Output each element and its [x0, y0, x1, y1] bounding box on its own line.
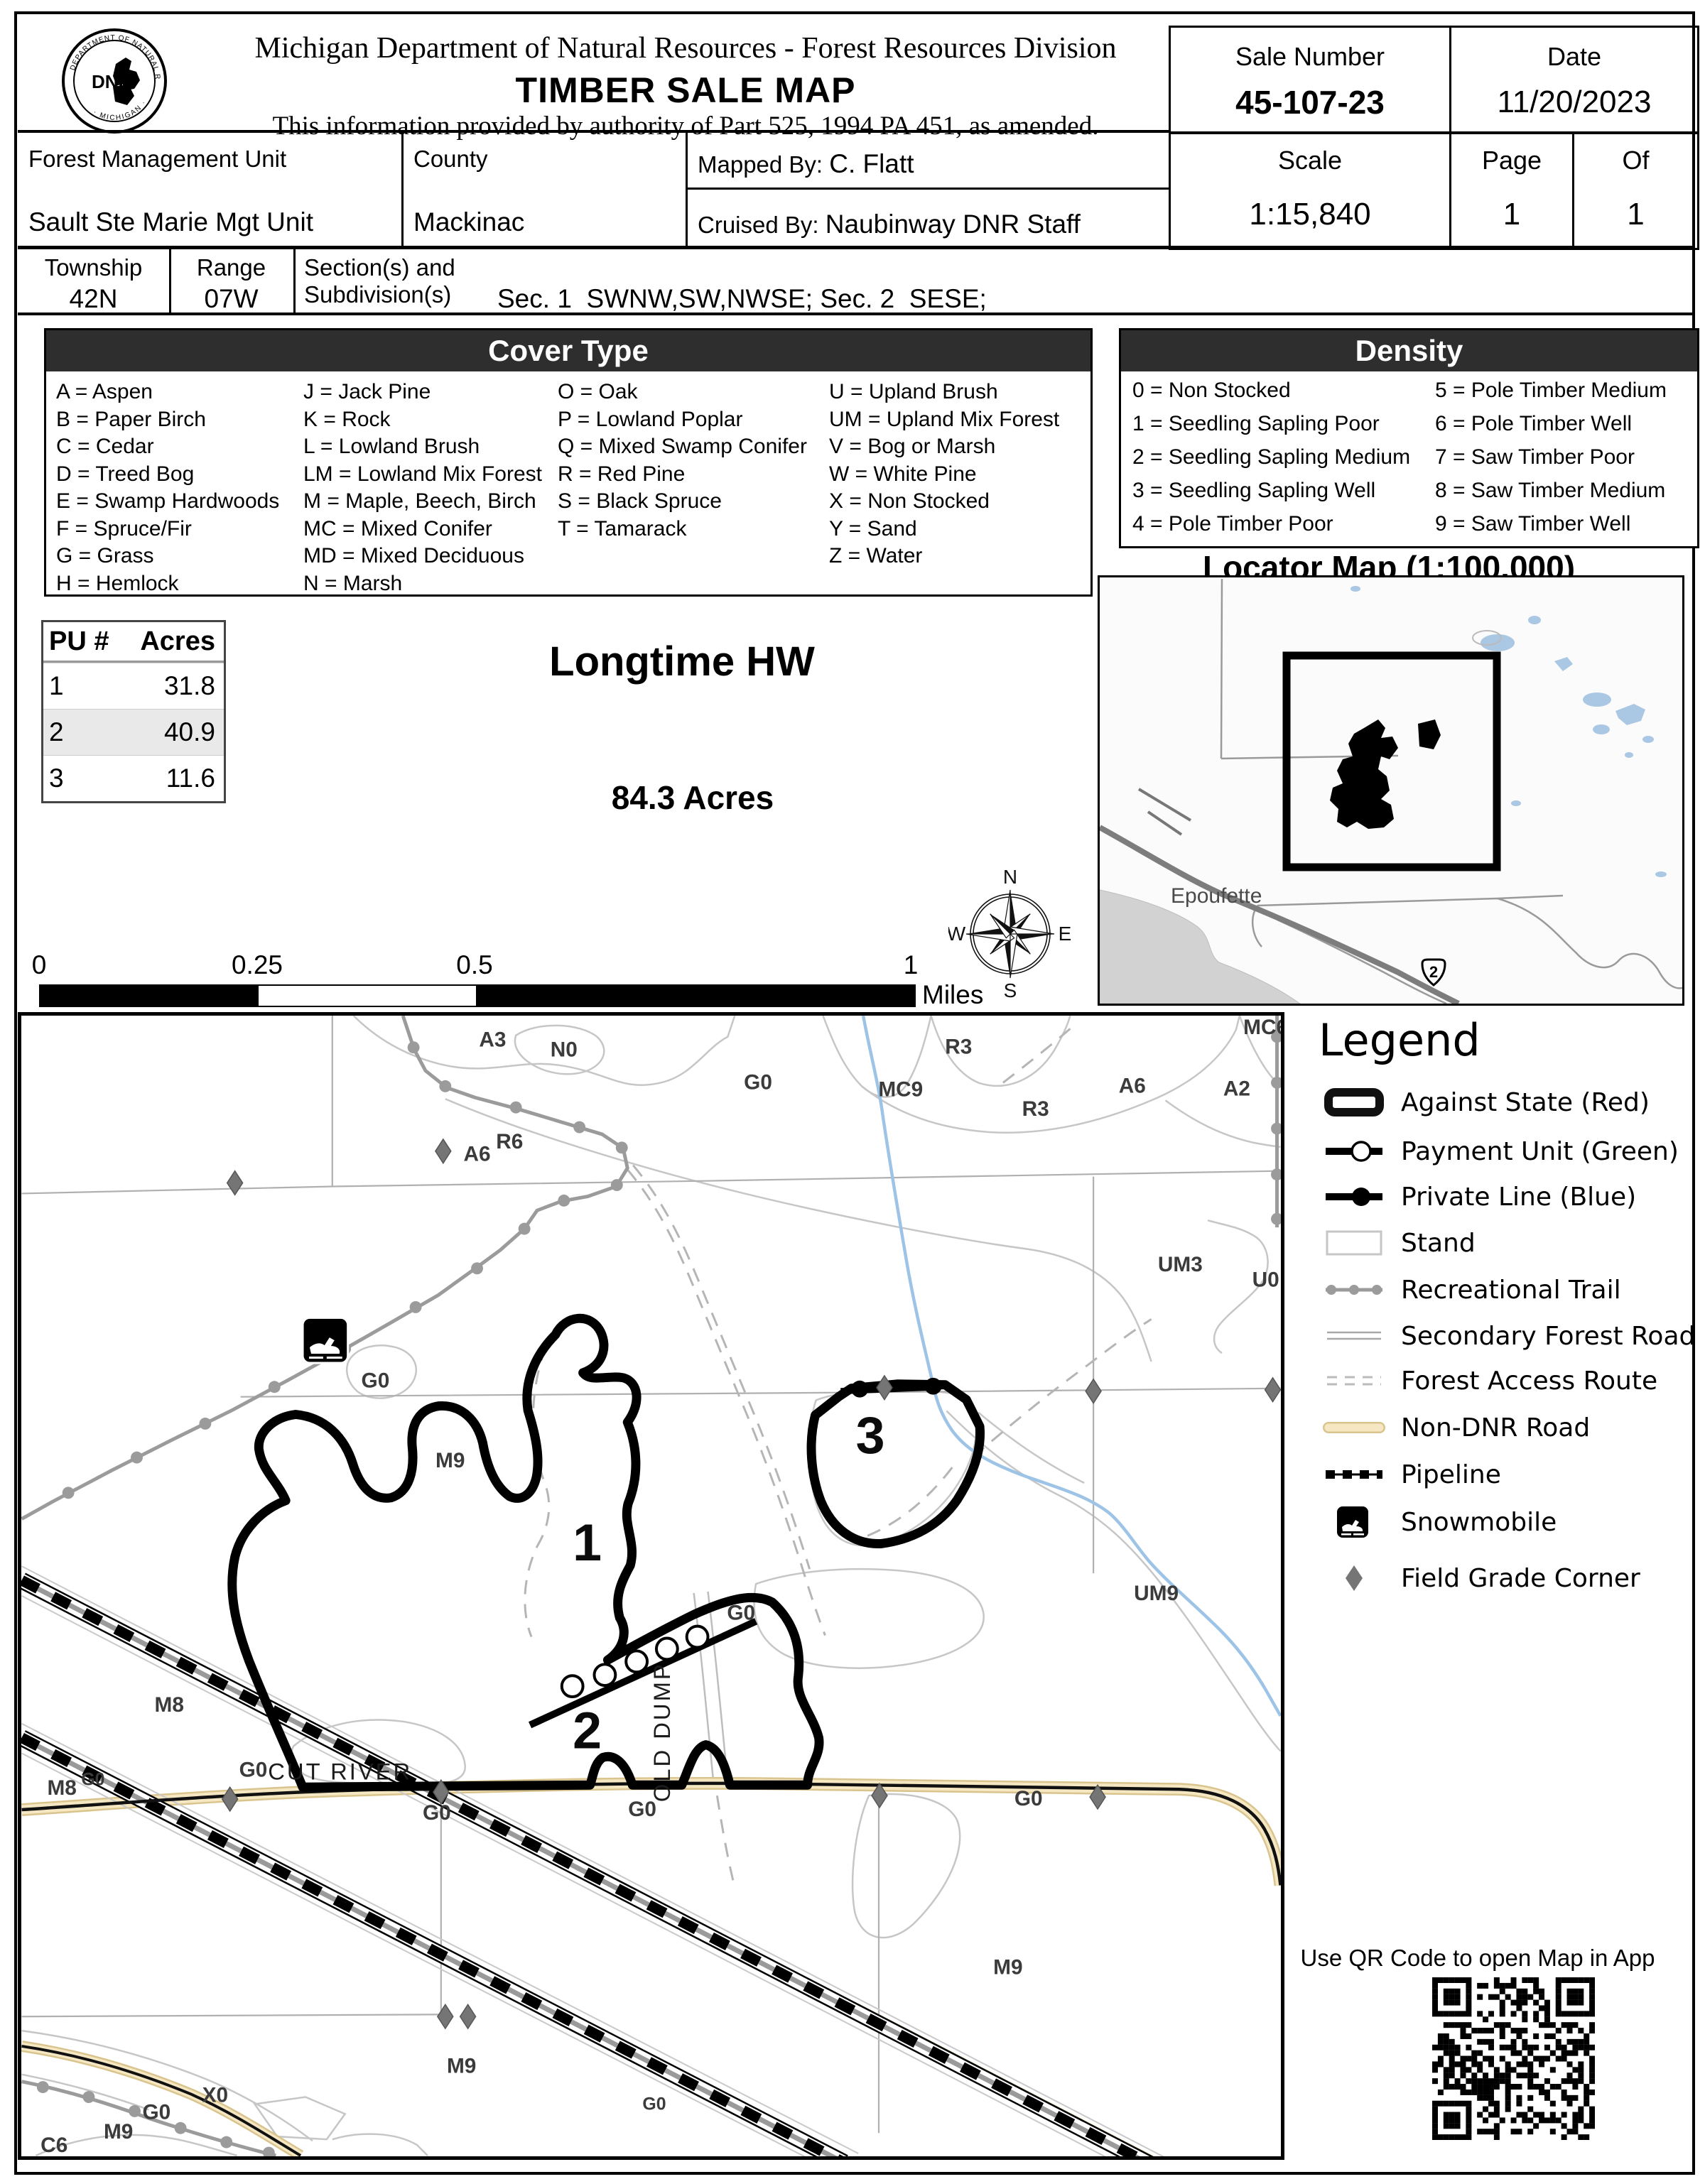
dnr-logo-icon: DEPARTMENT OF NATURAL RESOURCES · MICHIG… — [60, 27, 168, 135]
trail-dot — [1271, 1213, 1283, 1225]
stand-boundaries — [22, 1016, 1281, 2156]
stand-label: MC9 — [878, 1077, 923, 1101]
cover-type-entry: Y = Sand — [829, 517, 917, 541]
stand-label: M8 — [47, 1776, 76, 1800]
stand-label: A6 — [1119, 1074, 1146, 1097]
trail-dot — [1271, 1123, 1283, 1135]
pu-row-3: 311.6 — [43, 755, 224, 801]
qr-caption: Use QR Code to open Map in App — [1272, 1945, 1684, 1972]
density-entry: 4 = Pole Timber Poor — [1132, 512, 1333, 536]
legend-item-against-state: Against State (Red) — [1323, 1087, 1692, 1118]
stand-label: M9 — [993, 1956, 1022, 1979]
cruised-by-label: Cruised By: Naubinway DNR Staff — [698, 210, 1081, 239]
acres-col-header: Acres — [126, 626, 224, 657]
legend-item-recreational-trail: Recreational Trail — [1323, 1274, 1692, 1305]
stand-label: R6 — [496, 1130, 523, 1153]
cover-type-entry: G = Grass — [56, 544, 154, 568]
snowmobile-icon — [1323, 1506, 1385, 1538]
mapped-by-label: Mapped By: C. Flatt — [698, 149, 914, 179]
private-line-node — [925, 1378, 942, 1395]
stand-label: A3 — [479, 1028, 506, 1052]
payment-unit-label: 2 — [573, 1701, 602, 1760]
scalebar-tick-1: 1 — [868, 950, 953, 980]
trail-dot — [263, 2147, 275, 2159]
county-value: Mackinac — [413, 207, 524, 237]
cover-type-entry: Q = Mixed Swamp Conifer — [558, 435, 807, 459]
density-entry: 3 = Seedling Sapling Well — [1132, 479, 1375, 503]
stand-label: A2 — [1223, 1077, 1250, 1100]
trail-dot — [1271, 1077, 1283, 1089]
section-lines — [22, 1016, 1281, 2133]
scalebar-tick-025: 0.25 — [215, 950, 300, 980]
sections-label: Section(s) andSubdivision(s) — [304, 254, 455, 308]
legend-item-field-grade-corner: Field Grade Corner — [1323, 1563, 1692, 1594]
stand-label: R3 — [1022, 1097, 1049, 1121]
timber-sale-map: A3N0G0MC9R3R3A6A2MC6R6A6UM3U0UM9G0M9G0M8… — [18, 1012, 1284, 2160]
sale-number-label: Sale Number — [1171, 42, 1449, 72]
stand-label: G0 — [1014, 1787, 1043, 1810]
stand-label: M9 — [435, 1449, 465, 1472]
agency-title: Michigan Department of Natural Resources… — [213, 31, 1158, 65]
cover-type-title: Cover Type — [46, 330, 1090, 371]
qr-code — [1432, 1977, 1595, 2140]
trail-dot — [611, 1179, 623, 1191]
density-entry: 7 = Saw Timber Poor — [1435, 445, 1635, 469]
trail-dot — [63, 1487, 75, 1499]
pipelines — [22, 1566, 1166, 2160]
svg-text:2: 2 — [1429, 963, 1438, 981]
cover-type-entry: M = Maple, Beech, Birch — [303, 489, 536, 514]
trail-dot — [616, 1141, 628, 1153]
pu-col-header: PU # — [43, 626, 126, 657]
trail-dot — [175, 2122, 187, 2134]
trail-dot — [37, 2081, 49, 2093]
field-grade-corner-icon — [877, 1376, 892, 1400]
stand-label: M8 — [155, 1693, 184, 1717]
trail-dot — [199, 1418, 211, 1430]
locator-map: Epoufette 2 — [1098, 575, 1684, 1006]
cover-type-entry: V = Bog or Marsh — [829, 435, 995, 459]
density-entry: 6 = Pole Timber Well — [1435, 412, 1632, 436]
density-entry: 1 = Seedling Sapling Poor — [1132, 412, 1380, 436]
recreational-trail-icon — [1323, 1274, 1385, 1305]
cover-type-entry: X = Non Stocked — [829, 489, 990, 514]
scale-value: 1:15,840 — [1171, 197, 1449, 232]
trail-dot — [129, 2105, 141, 2117]
payment-unit-label: 3 — [856, 1406, 885, 1465]
cover-type-entry: T = Tamarack — [558, 517, 686, 541]
road-label: OLD DUMP — [649, 1662, 675, 1802]
legend-item-label: Pipeline — [1401, 1460, 1501, 1489]
stand-label: X0 — [202, 2083, 228, 2107]
pu-table-header: PU # Acres — [43, 622, 224, 663]
legend-item-label: Against State (Red) — [1401, 1088, 1650, 1117]
fmu-value: Sault Ste Marie Mgt Unit — [28, 207, 313, 237]
stand-label: G0 — [423, 1801, 451, 1825]
legend-item-snowmobile: Snowmobile — [1323, 1506, 1692, 1538]
cover-type-entry: N = Marsh — [303, 572, 402, 596]
trail-dot — [1271, 1168, 1283, 1180]
legend-item-payment-unit: Payment Unit (Green) — [1323, 1136, 1692, 1167]
scale-label: Scale — [1171, 146, 1449, 175]
sale-total-acres: 84.3 Acres — [408, 778, 977, 817]
cover-type-panel: Cover Type A = AspenB = Paper BirchC = C… — [44, 328, 1093, 597]
cover-type-entry: UM = Upland Mix Forest — [829, 408, 1059, 432]
range-value: 07W — [169, 284, 293, 314]
density-entry: 2 = Seedling Sapling Medium — [1132, 445, 1410, 469]
density-entry: 0 = Non Stocked — [1132, 379, 1291, 403]
legend-item-stand: Stand — [1323, 1227, 1692, 1259]
compass-s: S — [1004, 979, 1017, 999]
cover-type-entry: O = Oak — [558, 380, 638, 404]
road-label: CUT RIVER — [268, 1758, 412, 1784]
payment-unit-node — [656, 1639, 678, 1660]
cover-type-entry: F = Spruce/Fir — [56, 517, 192, 541]
density-title: Density — [1121, 330, 1697, 371]
field-grade-corner-icon — [1265, 1378, 1281, 1402]
compass-w: W — [948, 923, 966, 945]
pu-row-1: 131.8 — [43, 663, 224, 709]
trail-dots — [37, 1031, 1283, 2158]
stand-label: G0 — [142, 2100, 170, 2124]
legend-item-label: Forest Access Route — [1401, 1367, 1657, 1396]
cover-type-entry: L = Lowland Brush — [303, 435, 480, 459]
township-value: 42N — [18, 284, 169, 314]
cover-type-entry: U = Upland Brush — [829, 380, 998, 404]
trail-dot — [510, 1102, 522, 1114]
cover-type-entry: C = Cedar — [56, 435, 154, 459]
field-grade-corner-icon — [435, 1139, 451, 1163]
page-value: 1 — [1451, 197, 1572, 232]
forest-access-route-icon — [1323, 1365, 1385, 1396]
stand-label: MC6 — [1243, 1016, 1284, 1039]
cover-type-entry: S = Black Spruce — [558, 489, 722, 514]
cover-type-entry: W = White Pine — [829, 462, 977, 487]
trail-dot — [573, 1121, 585, 1134]
field-grade-corner-icon — [227, 1171, 243, 1195]
scalebar-tick-0: 0 — [0, 950, 82, 980]
trail-dot — [131, 1452, 143, 1464]
legend-item-label: Field Grade Corner — [1401, 1564, 1640, 1593]
trail-dot — [439, 1080, 451, 1092]
legend-title: Legend — [1319, 1014, 1481, 1066]
stand-label: U0 — [1252, 1268, 1279, 1292]
trail-dot — [269, 1381, 281, 1393]
stand-label: UM3 — [1158, 1253, 1203, 1276]
cover-type-entry: K = Rock — [303, 408, 391, 432]
cover-type-entry: H = Hemlock — [56, 572, 179, 596]
field-grade-corner-icon — [1323, 1563, 1385, 1594]
stand-label: M9 — [447, 2055, 476, 2078]
legend-item-non-dnr-road: Non-DNR Road — [1323, 1412, 1692, 1443]
stand-label: M9 — [104, 2120, 133, 2144]
fmu-label: Forest Management Unit — [28, 146, 286, 173]
payment-unit-node — [562, 1675, 583, 1697]
pipeline-icon — [1323, 1459, 1385, 1490]
stand-label: G0 — [239, 1758, 268, 1781]
payment-unit-label: 1 — [573, 1513, 602, 1572]
trail-dot — [220, 2136, 232, 2148]
private-line-icon — [1323, 1181, 1385, 1212]
compass-n: N — [1003, 868, 1017, 888]
stand-label: N0 — [551, 1038, 578, 1062]
sale-info-table: Sale Number 45-107-23 Date 11/20/2023 Sc… — [1169, 26, 1699, 250]
stand-label: G0 — [362, 1369, 390, 1393]
density-panel: Density 0 = Non Stocked1 = Seedling Sapl… — [1119, 328, 1699, 548]
cover-type-entry: LM = Lowland Mix Forest — [303, 462, 542, 487]
density-entry: 5 = Pole Timber Medium — [1435, 379, 1667, 403]
stand-icon — [1323, 1227, 1385, 1259]
cover-type-entry: P = Lowland Poplar — [558, 408, 742, 432]
township-label: Township — [18, 254, 169, 281]
secondary-forest-road-icon — [1323, 1320, 1385, 1352]
legend-item-label: Payment Unit (Green) — [1401, 1137, 1679, 1166]
trail-dot — [558, 1195, 570, 1207]
density-entry: 8 = Saw Timber Medium — [1435, 479, 1665, 503]
non-dnr-road-icon — [1323, 1412, 1385, 1443]
compass-rose-icon: N E S W — [948, 868, 1073, 999]
date-label: Date — [1451, 42, 1697, 72]
stand-label: G0 — [727, 1602, 755, 1625]
cover-type-entry: R = Red Pine — [558, 462, 685, 487]
scale-bar — [39, 984, 916, 1007]
of-value: 1 — [1574, 197, 1697, 232]
payment-unit-node — [594, 1664, 615, 1685]
legend-item-label: Stand — [1401, 1229, 1476, 1258]
trail-dot — [410, 1301, 422, 1313]
stand-label: A6 — [463, 1143, 490, 1166]
payment-unit-icon — [1323, 1136, 1385, 1167]
sale-number-value: 45-107-23 — [1171, 83, 1449, 121]
stand-label: G0 — [744, 1070, 772, 1094]
legend-item-label: Recreational Trail — [1401, 1276, 1621, 1305]
legend-item-private-line: Private Line (Blue) — [1323, 1181, 1692, 1212]
legend-item-secondary-forest-road: Secondary Forest Road — [1323, 1320, 1692, 1352]
trail-dot — [519, 1223, 531, 1235]
payment-unit-node — [687, 1626, 708, 1648]
sections-value: Sec. 1 SWNW,SW,NWSE; Sec. 2 SESE; — [497, 284, 987, 314]
stand-label: C6 — [40, 2134, 67, 2157]
legend-item-label: Private Line (Blue) — [1401, 1183, 1636, 1212]
stand-label: UM9 — [1134, 1582, 1179, 1605]
cover-type-entry: E = Swamp Hardwoods — [56, 489, 279, 514]
locator-place-label: Epoufette — [1171, 884, 1262, 908]
density-entry: 9 = Saw Timber Well — [1435, 512, 1630, 536]
of-label: Of — [1574, 146, 1697, 175]
legend-item-label: Snowmobile — [1401, 1508, 1557, 1537]
field-grade-corner-icon — [1086, 1379, 1101, 1403]
payment-unit-node — [626, 1651, 647, 1672]
cover-type-entry: MD = Mixed Deciduous — [303, 544, 524, 568]
field-grade-corner-icon — [438, 2004, 453, 2028]
range-label: Range — [169, 254, 293, 281]
county-label: County — [413, 146, 488, 173]
cover-type-entry: J = Jack Pine — [303, 380, 431, 404]
cover-type-entry: A = Aspen — [56, 380, 153, 404]
stand-label: R3 — [945, 1036, 972, 1059]
doc-title: TIMBER SALE MAP — [213, 70, 1158, 111]
cover-type-entry: Z = Water — [829, 544, 922, 568]
scalebar-tick-05: 0.5 — [432, 950, 517, 980]
compass-e: E — [1059, 923, 1072, 945]
stand-label: G0 — [642, 2095, 666, 2114]
sale-name: Longtime HW — [327, 638, 1037, 685]
date-value: 11/20/2023 — [1451, 85, 1697, 120]
private-line-node — [851, 1381, 868, 1398]
trail-dot — [408, 1041, 420, 1053]
legend-item-label: Non-DNR Road — [1401, 1413, 1590, 1443]
trail-dot — [471, 1262, 483, 1274]
pu-row-2: 240.9 — [43, 709, 224, 755]
trail-dot — [82, 2091, 94, 2103]
stand-label: G0 — [81, 1770, 104, 1789]
against-state-icon — [1323, 1087, 1385, 1118]
legend-item-forest-access-route: Forest Access Route — [1323, 1365, 1692, 1396]
cruised-by-value: Naubinway DNR Staff — [826, 210, 1081, 239]
snowmobile-icon — [303, 1318, 348, 1363]
legend-item-pipeline: Pipeline — [1323, 1459, 1692, 1490]
pu-acres-table: PU # Acres 131.8 240.9 311.6 — [41, 620, 226, 803]
cover-type-entry: B = Paper Birch — [56, 408, 206, 432]
legend-item-label: Secondary Forest Road — [1401, 1322, 1695, 1351]
cover-type-entry: MC = Mixed Conifer — [303, 517, 492, 541]
mapped-by-value: C. Flatt — [829, 149, 914, 178]
cover-type-entry: D = Treed Bog — [56, 462, 194, 487]
page-label: Page — [1451, 146, 1572, 175]
field-grade-corner-icon — [460, 2004, 476, 2028]
logo-text: DNR — [92, 71, 132, 92]
